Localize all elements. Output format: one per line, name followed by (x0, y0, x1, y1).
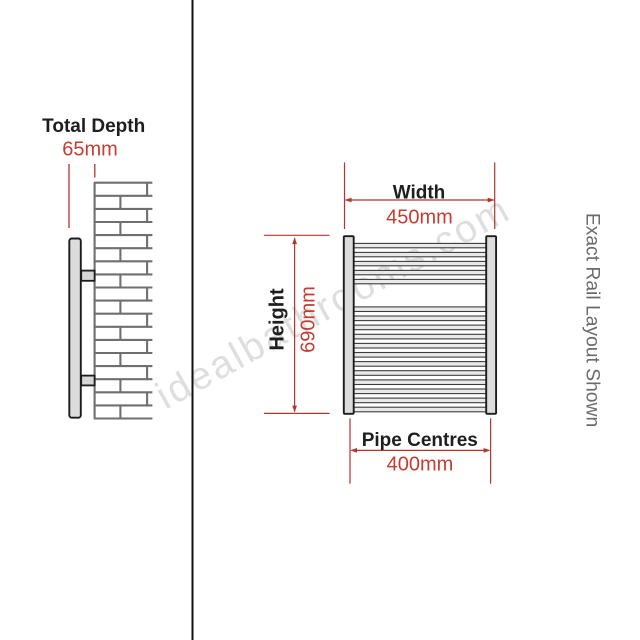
svg-text:450mm: 450mm (386, 206, 453, 228)
svg-text:Pipe Centres: Pipe Centres (362, 430, 478, 451)
svg-text:690mm: 690mm (297, 286, 319, 353)
svg-text:Total Depth: Total Depth (42, 116, 145, 137)
svg-text:Exact Rail Layout Shown: Exact Rail Layout Shown (581, 213, 602, 427)
svg-text:65mm: 65mm (62, 139, 118, 161)
svg-text:400mm: 400mm (387, 454, 454, 476)
svg-text:Height: Height (267, 288, 289, 351)
